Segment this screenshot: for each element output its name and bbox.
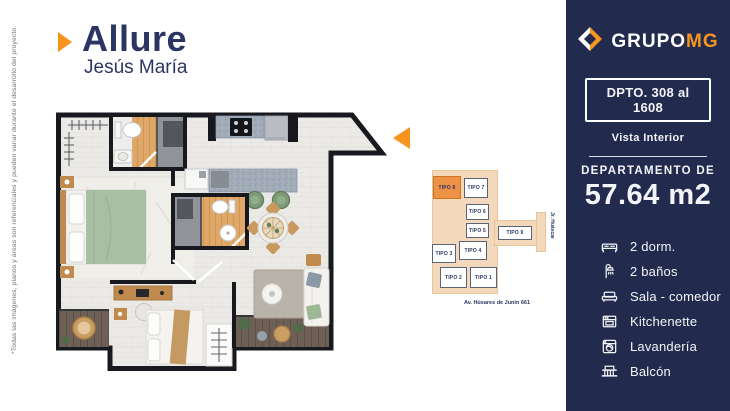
- brand-name: GRUPOMG: [611, 31, 718, 53]
- amenity-balcony: Balcón: [566, 359, 730, 384]
- keyplan-unit-tipo-2: TIPO 2: [440, 267, 467, 288]
- balcony-icon: [599, 362, 619, 382]
- keyplan: TIPO 8 TIPO 7 TIPO 6 TIPO 5 TIPO 9 TIPO …: [428, 168, 566, 316]
- shower-icon: [599, 262, 619, 282]
- toilet: [115, 122, 141, 138]
- master-bed: [60, 190, 146, 264]
- keyplan-unit-tipo-8: TIPO 8: [433, 176, 461, 199]
- amenity-label: 2 dorm.: [630, 239, 675, 254]
- keyplan-unit-tipo-9: TIPO 9: [498, 226, 532, 240]
- sink: [114, 150, 132, 163]
- sofa-icon: [599, 287, 619, 307]
- amenity-label: 2 baños: [630, 264, 678, 279]
- keyplan-unit-tipo-1: TIPO 1: [470, 267, 497, 288]
- amenity-label: Sala - comedor: [630, 289, 721, 304]
- area-label: DEPARTAMENTO DE: [566, 165, 730, 177]
- balcony-left: [59, 310, 109, 347]
- desk-lamp: [119, 290, 124, 295]
- entrance-arrow-icon: [393, 127, 410, 149]
- project-title: Allure: [82, 18, 187, 60]
- fridge: [265, 116, 288, 140]
- disclaimer-text: *Todas las imágenes, planos y áreas son …: [8, 38, 21, 354]
- keyplan-unit-tipo-4: TIPO 4: [459, 241, 487, 260]
- area-value: 57.64 m2: [566, 179, 730, 212]
- bathroom-1: [111, 115, 185, 169]
- side-table: [306, 254, 321, 266]
- keyplan-unit-tipo-7: TIPO 7: [464, 178, 488, 198]
- divider: [589, 156, 707, 157]
- washing-machine: [199, 171, 206, 178]
- cooktop: [230, 118, 252, 136]
- keyplan-unit-tipo-6: TIPO 6: [466, 204, 489, 220]
- flyer-canvas: *Todas las imágenes, planos y áreas son …: [0, 0, 730, 411]
- keyplan-footprint: [536, 212, 546, 252]
- grupomg-diamond-icon: [577, 26, 603, 57]
- view-label: Vista Interior: [566, 132, 730, 144]
- unit-range-badge: DPTO. 308 al 1608: [585, 78, 711, 122]
- toilet: [212, 201, 228, 214]
- amenity-bedrooms: 2 dorm.: [566, 234, 730, 259]
- amenity-kitchenette: Kitchenette: [566, 309, 730, 334]
- laundry: [185, 169, 208, 189]
- street-label-right: Jr. Huáscar: [549, 212, 555, 252]
- brand-logo: GRUPOMG: [566, 0, 730, 57]
- allure-arrow-icon: [58, 32, 72, 52]
- laptop: [136, 289, 149, 297]
- bed-icon: [599, 237, 619, 257]
- desk: [114, 286, 172, 300]
- bathroom-2: [173, 195, 247, 248]
- pillow-gray: [306, 272, 323, 289]
- bed-2: [146, 309, 203, 364]
- amenity-living: Sala - comedor: [566, 284, 730, 309]
- info-sidebar: GRUPOMG DPTO. 308 al 1608 Vista Interior…: [566, 0, 730, 411]
- keyplan-unit-tipo-5: TIPO 5: [466, 223, 489, 238]
- amenity-label: Lavandería: [630, 339, 697, 354]
- amenities-list: 2 dorm. 2 baños: [566, 234, 730, 384]
- pillow-green: [306, 304, 322, 320]
- street-label-bottom: Av. Húsares de Junín 661: [428, 300, 566, 306]
- amenity-label: Kitchenette: [630, 314, 697, 329]
- amenity-label: Balcón: [630, 364, 671, 379]
- closet-2: [206, 324, 232, 366]
- sofa: [304, 268, 329, 326]
- washer-icon: [599, 337, 619, 357]
- keyplan-unit-tipo-3: TIPO 3: [432, 244, 456, 263]
- amenity-bathrooms: 2 baños: [566, 259, 730, 284]
- project-location: Jesús María: [84, 57, 187, 79]
- amenity-laundry: Lavandería: [566, 334, 730, 359]
- floorplan-illustration: [56, 112, 408, 376]
- island-sink: [211, 171, 229, 188]
- kitchen-icon: [599, 312, 619, 332]
